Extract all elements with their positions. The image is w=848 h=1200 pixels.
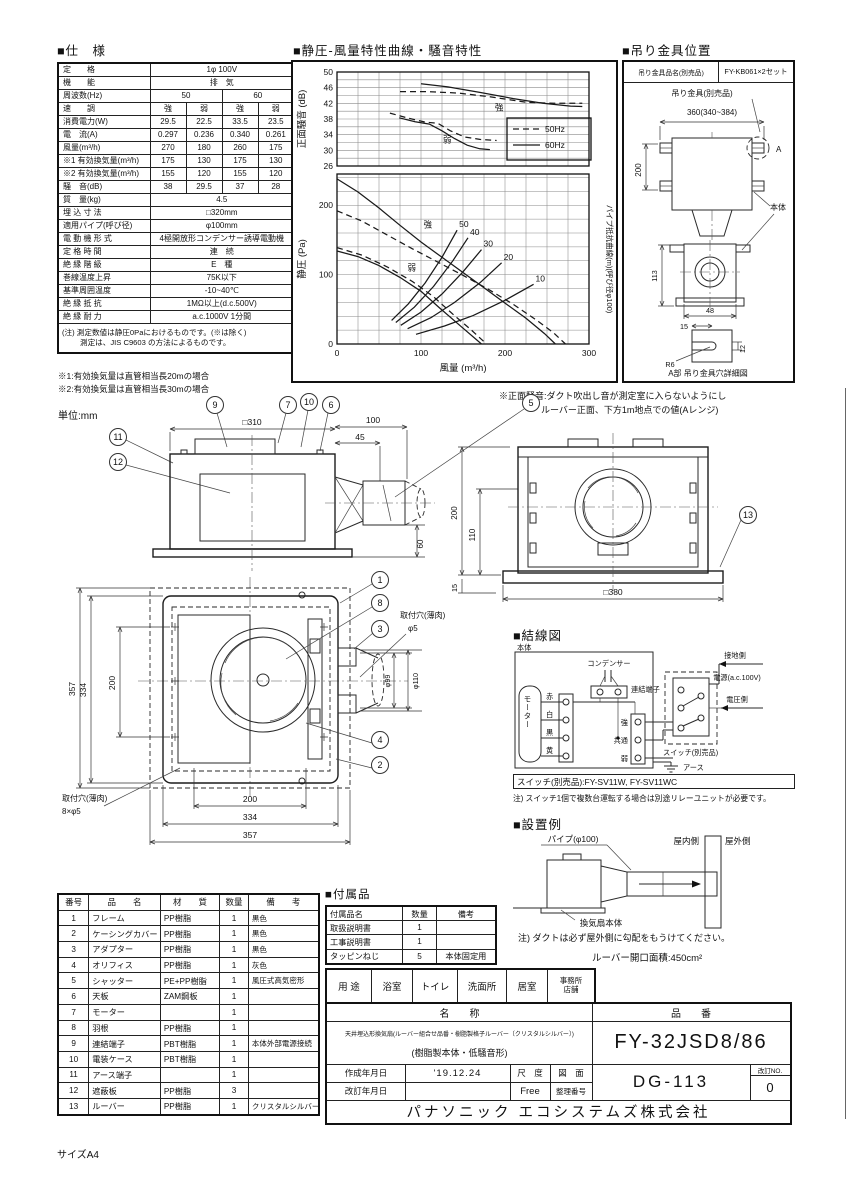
usage-item: 居室 (507, 969, 548, 1003)
dim-113: 113 (650, 270, 659, 281)
svg-text:30: 30 (483, 239, 493, 249)
callout-12: 12 (110, 454, 127, 471)
earth-label: アース (683, 763, 704, 772)
parts-table: 番号 品 名 材 質 数量 備 考 1フレームPP樹脂1黒色2ケーシングカバーP… (57, 893, 320, 1116)
weak-label: 弱 (621, 754, 628, 763)
sheet-size-label: サイズA4 (57, 1146, 99, 1161)
common-label: 共通 (614, 736, 628, 745)
callout-5: 5 (523, 395, 540, 412)
dim-12: 12 (738, 345, 747, 353)
dim-200: 200 (634, 163, 643, 177)
dim-380: □380 (603, 587, 623, 597)
dim-334-b: 334 (243, 812, 257, 822)
spec-quad-rows: 速 調強弱強弱消費電力(W)29.522.533.523.5電 流(A)0.29… (58, 103, 294, 194)
mount-hole-label-bl: 取付穴(薄肉) (62, 793, 108, 803)
parts-row: 6天板ZAM鋼板1 (58, 989, 319, 1005)
wire-yellow-label: 黄 (546, 746, 553, 755)
model-number: FY-32JSD8/86 (592, 1021, 790, 1064)
svg-text:風量 (m³/h): 風量 (m³/h) (440, 363, 487, 374)
spec-row: 機 能排 気 (58, 77, 294, 90)
installation-note: 注) ダクトは必ず屋外側に勾配をもうけてください。 (518, 931, 730, 944)
callout-9: 9 (207, 397, 224, 414)
svg-text:40: 40 (470, 227, 480, 237)
datasheet-page: ■仕 様 ■静圧-風量特性曲線・騒音特性 ■吊り金具位置 定 格1φ 100V … (0, 0, 848, 1200)
created-label: 作成年月日 (327, 1064, 405, 1082)
svg-text:46: 46 (324, 83, 334, 93)
spec-row: 基準周囲温度-10~40℃ (58, 285, 294, 298)
name-header: 名 称 (327, 1004, 592, 1021)
switch-label: スイッチ(別売品) (663, 748, 718, 757)
body-label: 本体 (517, 643, 531, 652)
mount-hole-label-top: 取付穴(薄肉) (400, 610, 446, 620)
spec-row: 適用パイプ(呼び径)φ100mm (58, 220, 294, 233)
voltage-side-label: 電圧側 (726, 695, 748, 704)
a-mark: A (776, 145, 782, 154)
svg-text:正面騒音 (dB): 正面騒音 (dB) (296, 90, 308, 149)
svg-text:9: 9 (212, 400, 217, 410)
dim-357-v: 357 (67, 682, 77, 696)
rear-view-drawing: 200 110 15 □380 13 (448, 423, 798, 605)
bracket-label: 吊り金具(別売品) (671, 88, 733, 98)
svg-text:13: 13 (743, 510, 753, 520)
spec-table: 定 格1φ 100V 機 能排 気 周波数(Hz)5060 速 調強弱強弱消費電… (57, 62, 295, 354)
dim-48: 48 (706, 306, 714, 315)
svg-text:100: 100 (414, 348, 428, 358)
accessories-section-title: ■付属品 (325, 886, 370, 902)
parts-row: 7モーター1 (58, 1004, 319, 1020)
mount-hole-size-bl: 8×φ5 (62, 807, 81, 816)
usage-table: 用 途 浴室 トイレ 洗面所 居室 事務所店舗 (325, 968, 596, 1004)
dim-phi110: φ110 (411, 673, 420, 689)
parts-row: 12遮蔽板PP樹脂3 (58, 1083, 319, 1099)
detail-caption: A部 吊り金具穴詳細図 (668, 368, 748, 378)
product-name-line2: (樹脂製本体・低騒音形) (327, 1042, 592, 1062)
svg-text:4: 4 (377, 735, 382, 745)
svg-text:3: 3 (377, 624, 382, 634)
drawing-number: DG-113 (592, 1064, 750, 1100)
svg-text:静圧 (Pa): 静圧 (Pa) (296, 239, 308, 279)
capacitor-label: コンデンサー (587, 659, 630, 668)
hanging-part-label: 吊り金具品名(別売品) (624, 62, 719, 82)
spec-row: 絶 縁 階 級E 種 (58, 259, 294, 272)
accessories-rows: 取扱説明書1工事説明書1タッピンねじ5本体固定用 (326, 921, 496, 964)
svg-text:34: 34 (324, 130, 334, 140)
created-date: '19.12.24 (405, 1064, 510, 1082)
spec-row: 周波数(Hz)5060 (58, 90, 294, 103)
dim-357-b: 357 (243, 830, 257, 840)
svg-text:42: 42 (324, 98, 334, 108)
svg-text:26: 26 (324, 161, 334, 171)
callout-3: 3 (372, 621, 389, 638)
spec-row: 消費電力(W)29.522.533.523.5 (58, 116, 294, 129)
svg-text:パイプ抵抗曲線(m)(呼び径φ100): パイプ抵抗曲線(m)(呼び径φ100) (605, 205, 615, 314)
spec-row: 巻線温度上昇75K以下 (58, 272, 294, 285)
usage-item: 洗面所 (458, 969, 507, 1003)
dim-200-v: 200 (107, 676, 117, 690)
spec-row: 絶 縁 抵 抗1MΩ以上(d.c.500V) (58, 298, 294, 311)
svg-text:300: 300 (582, 348, 596, 358)
accessories-table: 付属品名 数量 備考 取扱説明書1工事説明書1タッピンねじ5本体固定用 (325, 905, 497, 965)
strong-label: 強 (621, 718, 628, 727)
usage-label: 用 途 (326, 969, 372, 1003)
svg-text:50: 50 (324, 67, 334, 77)
svg-text:12: 12 (113, 457, 123, 467)
dim-15: 15 (680, 322, 688, 331)
svg-text:強: 強 (495, 102, 504, 112)
title-block: 名 称 品 番 天井埋込形換気扇(ルーバー組合せ品番・樹脂製格子ルーバー〔クリス… (325, 1002, 792, 1125)
hanging-bracket-drawing: 吊り金具(別売品) 360(340~384) 200 A 本体 (624, 82, 793, 379)
ground-side-label: 接地側 (724, 651, 746, 660)
callout-10: 10 (301, 394, 318, 411)
usage-item-office: 事務所店舗 (548, 969, 596, 1003)
wire-red-label: 赤 (546, 692, 553, 701)
callout-13: 13 (740, 507, 757, 524)
number-label: 整理番号 (550, 1082, 592, 1100)
dim-200: 200 (450, 506, 459, 520)
spec-single-rows: 質 量(kg)4.5埋 込 寸 法□320mm適用パイプ(呼び径)φ100mm電… (58, 194, 294, 324)
spec-row: 風量(m³/h)270180260175 (58, 142, 294, 155)
wire-white-label: 白 (546, 710, 553, 719)
spec-section-title: ■仕 様 (57, 40, 106, 59)
parts-header-row: 番号 品 名 材 質 数量 備 考 (58, 894, 319, 910)
svg-text:200: 200 (498, 348, 512, 358)
parts-row: 1フレームPP樹脂1黒色 (58, 910, 319, 926)
performance-chart: 2630343842465001002005040302010強弱強弱01002… (293, 62, 616, 381)
spec-row: 定 格 時 間連 続 (58, 246, 294, 259)
svg-text:20: 20 (504, 252, 514, 262)
callout-4: 4 (372, 732, 389, 749)
parts-row: 5シャッターPE+PP樹脂1風圧式高気密形 (58, 973, 319, 989)
spec-row: 定 格1φ 100V (58, 63, 294, 77)
svg-text:100: 100 (319, 270, 333, 280)
spec-row: 電 動 機 形 式4極開放形コンデンサー誘導電動機 (58, 233, 294, 246)
revised-label: 改訂年月日 (327, 1082, 405, 1100)
svg-text:10: 10 (304, 397, 314, 407)
svg-text:1: 1 (377, 575, 382, 585)
scale-value: Free (510, 1082, 550, 1100)
callout-11: 11 (110, 429, 127, 446)
dim-phi99: φ99 (383, 675, 392, 688)
parts-row: 9連結端子PBT樹脂1本体外部電源接続 (58, 1036, 319, 1052)
svg-text:0: 0 (335, 348, 340, 358)
callout-1: 1 (372, 572, 389, 589)
performance-chart-box: 2630343842465001002005040302010強弱強弱01002… (291, 60, 618, 383)
hanging-bracket-box: 吊り金具品名(別売品) FY-KB061×2セット 吊り金具(別売品) 360(… (622, 60, 795, 383)
wiring-note: 注) スイッチ1個で複数台運転する場合は別途リレーユニットが必要です。 (513, 793, 771, 804)
dim-110: 110 (468, 528, 477, 541)
spec-row: ※2 有効換気量(m³/h)155120155120 (58, 168, 294, 181)
accessories-row: タッピンねじ5本体固定用 (326, 949, 496, 964)
sheet-edge-line (845, 388, 846, 1119)
indoor-label: 屋内側 (673, 836, 699, 846)
terminal-label: 連結端子 (631, 685, 660, 694)
dim-360: 360(340~384) (687, 108, 737, 117)
dim-60: 60 (416, 539, 425, 548)
rev-no-value: 0 (750, 1075, 790, 1100)
front-noise-note-2: ルーバー正面、下方1m地点での値(Aレンジ) (541, 403, 718, 416)
svg-text:10: 10 (536, 273, 546, 283)
spec-row: 速 調強弱強弱 (58, 103, 294, 116)
bottom-view-drawing: 357 334 200 200 334 357 φ99 φ110 1 8 3 (60, 563, 460, 881)
switch-models: スイッチ(別売品):FY-SV11W, FY-SV11WC (513, 774, 795, 789)
drawing-label: 図 面 (550, 1064, 592, 1082)
dim-100: 100 (366, 415, 380, 425)
dim-310: □310 (242, 417, 262, 427)
parts-row: 3アダプターPP樹脂1黒色 (58, 942, 319, 958)
dim-45: 45 (355, 432, 365, 442)
callout-7: 7 (280, 397, 297, 414)
parts-row: 10電装ケースPBT樹脂1 (58, 1051, 319, 1067)
body-label: 本体 (770, 202, 786, 212)
parts-rows: 1フレームPP樹脂1黒色2ケーシングカバーPP樹脂1黒色3アダプターPP樹脂1黒… (58, 910, 319, 1114)
parts-row: 8羽根PP樹脂1 (58, 1020, 319, 1036)
hanging-section-title: ■吊り金具位置 (622, 40, 712, 59)
spec-note: (注) 測定数値は静圧0Paにおけるものです。(※は除く)測定は、JIS C96… (58, 324, 294, 354)
dim-334-v: 334 (78, 683, 88, 697)
model-header: 品 番 (592, 1004, 790, 1021)
scale-label: 尺 度 (510, 1064, 550, 1082)
chart-section-title: ■静圧-風量特性曲線・騒音特性 (293, 40, 482, 59)
wiring-diagram: 本体 赤 白 黒 黄 コンデンサー 連結端子 強 共通 弱 (513, 640, 795, 774)
svg-text:38: 38 (324, 114, 334, 124)
svg-text:50: 50 (459, 219, 469, 229)
svg-text:60Hz: 60Hz (545, 140, 565, 150)
parts-row: 13ルーバーPP樹脂1クリスタルシルバー (58, 1098, 319, 1114)
outdoor-label: 屋外側 (725, 836, 751, 846)
louver-area-note: ルーバー開口面積:450cm² (592, 950, 702, 964)
svg-text:8: 8 (377, 598, 382, 608)
spec-row: 電 流(A)0.2970.2360.3400.261 (58, 129, 294, 142)
svg-text:50Hz: 50Hz (545, 124, 565, 134)
accessories-header-row: 付属品名 数量 備考 (326, 906, 496, 921)
pipe-label: パイプ(φ100) (548, 834, 599, 844)
mount-hole-size-top: φ5 (408, 624, 418, 633)
r6-label: R6 (665, 360, 674, 369)
svg-text:強: 強 (424, 219, 433, 229)
usage-item: トイレ (413, 969, 458, 1003)
spec-row: 絶 縁 耐 力a.c.1000V 1分間 (58, 311, 294, 324)
parts-row: 11アース端子1 (58, 1067, 319, 1083)
power-label: 電源(a.c.100V) (713, 673, 761, 682)
revised-date (405, 1082, 510, 1100)
svg-text:30: 30 (324, 145, 334, 155)
fan-body-label: 換気扇本体 (580, 918, 623, 928)
svg-text:2: 2 (377, 760, 382, 770)
company-name: パナソニック エコシステムズ株式会社 (327, 1100, 790, 1123)
spec-row: ※1 有効換気量(m³/h)175130175130 (58, 155, 294, 168)
usage-item: 浴室 (372, 969, 413, 1003)
callout-6: 6 (323, 397, 340, 414)
spec-row: 騒 音(dB)3829.53728 (58, 181, 294, 194)
motor-label: モーター (522, 695, 533, 729)
hanging-header-row: 吊り金具品名(別売品) FY-KB061×2セット (624, 62, 793, 83)
svg-text:弱: 弱 (408, 262, 417, 272)
accessories-row: 工事説明書1 (326, 935, 496, 949)
svg-text:5: 5 (528, 398, 533, 408)
unit-note: 単位:mm (58, 407, 97, 422)
callout-2: 2 (372, 757, 389, 774)
svg-text:200: 200 (319, 200, 333, 210)
spec-row: 質 量(kg)4.5 (58, 194, 294, 207)
installation-drawing: パイプ(φ100) 屋内側 屋外側 換気扇本体 (513, 830, 795, 930)
rev-no-label: 改訂NO. (750, 1064, 790, 1075)
svg-text:11: 11 (113, 432, 122, 442)
parts-row: 4オリフィスPP樹脂1灰色 (58, 957, 319, 973)
hanging-part-no: FY-KB061×2セット (719, 62, 793, 82)
svg-text:7: 7 (285, 400, 290, 410)
svg-text:6: 6 (328, 400, 333, 410)
footnote-1: ※1:有効換気量は直管相当長20mの場合 (58, 370, 209, 382)
svg-text:0: 0 (328, 339, 333, 349)
spec-row: 埋 込 寸 法□320mm (58, 207, 294, 220)
parts-row: 2ケーシングカバーPP樹脂1黒色 (58, 926, 319, 942)
callout-8: 8 (372, 595, 389, 612)
dim-200-b: 200 (243, 794, 257, 804)
accessories-row: 取扱説明書1 (326, 921, 496, 935)
wire-black-label: 黒 (546, 728, 553, 737)
svg-text:弱: 弱 (443, 135, 452, 145)
